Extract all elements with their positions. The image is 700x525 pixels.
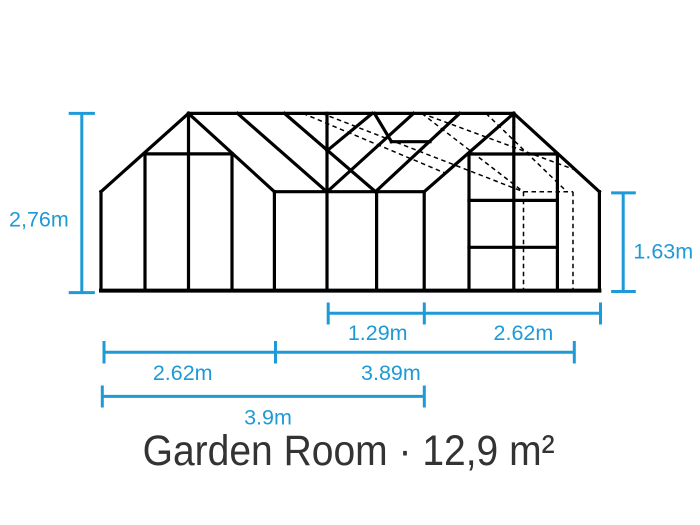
svg-text:2,76m: 2,76m — [9, 208, 69, 232]
svg-text:3.89m: 3.89m — [361, 361, 421, 385]
svg-text:2.62m: 2.62m — [494, 321, 554, 345]
svg-text:1.63m: 1.63m — [633, 240, 693, 264]
svg-text:Garden Room · 12,9 m²: Garden Room · 12,9 m² — [143, 427, 555, 475]
svg-text:2.62m: 2.62m — [153, 361, 213, 385]
svg-text:3.9m: 3.9m — [244, 406, 292, 430]
svg-text:1.29m: 1.29m — [348, 321, 408, 345]
